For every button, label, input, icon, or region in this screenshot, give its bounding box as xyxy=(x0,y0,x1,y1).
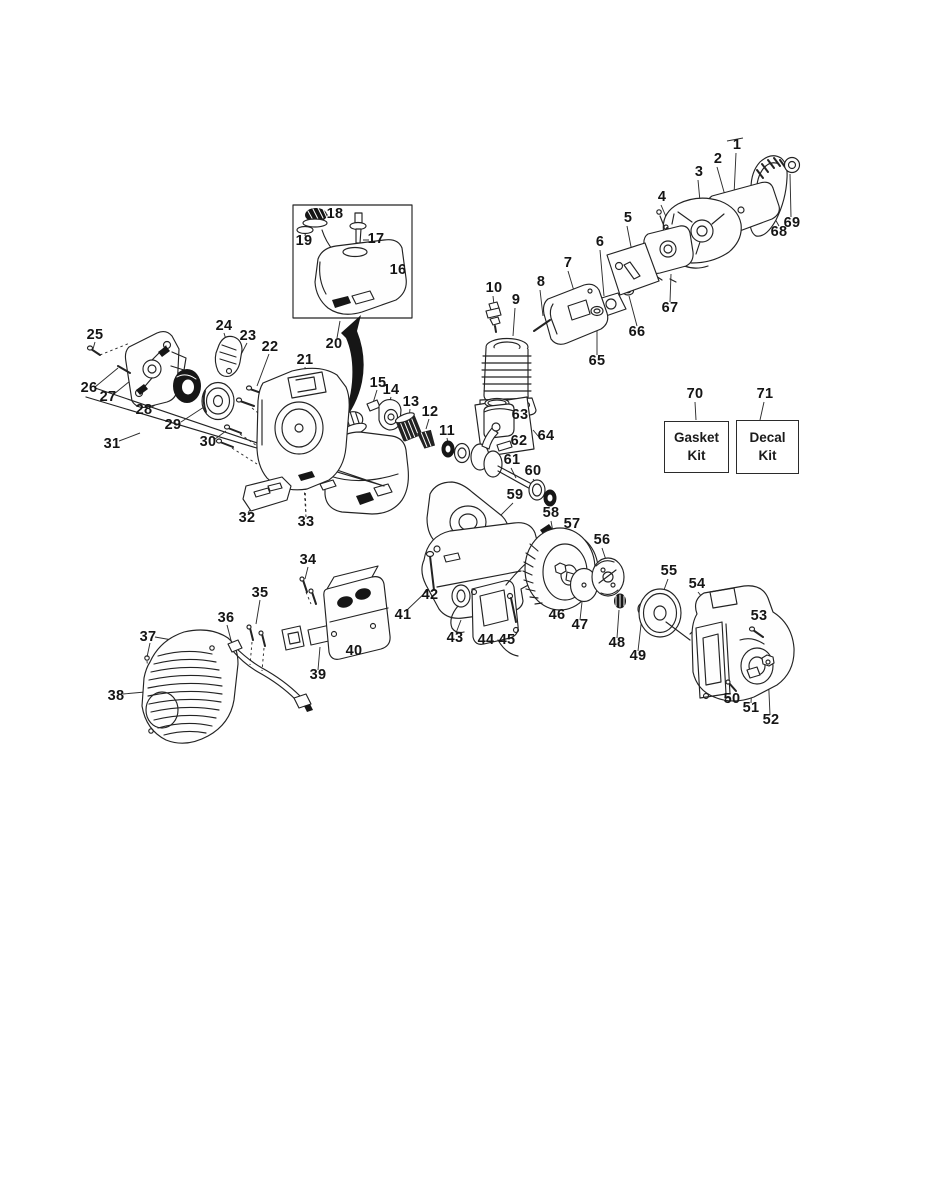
starter-screw xyxy=(91,349,100,355)
spark-plug xyxy=(486,302,501,332)
part-label-5: 5 xyxy=(624,210,632,226)
diagram-line-art xyxy=(0,0,932,1200)
part-label-16: 16 xyxy=(390,262,407,278)
part-label-6: 6 xyxy=(596,234,604,250)
flywheel-nut xyxy=(555,563,566,574)
part-label-3: 3 xyxy=(695,164,703,180)
part-label-8: 8 xyxy=(537,274,545,290)
part-label-13: 13 xyxy=(403,394,420,410)
part-label-41: 41 xyxy=(395,607,412,623)
part-label-48: 48 xyxy=(609,635,626,651)
part-label-15: 15 xyxy=(370,375,387,391)
part-label-7: 7 xyxy=(564,255,572,271)
gasket-kit-label-line1: Gasket xyxy=(674,429,719,447)
part-label-60: 60 xyxy=(525,463,542,479)
decal-kit-label-line2: Kit xyxy=(759,447,777,465)
part-label-47: 47 xyxy=(572,617,589,633)
part-label-63: 63 xyxy=(512,407,529,423)
part-label-50: 50 xyxy=(724,691,741,707)
part-label-61: 61 xyxy=(504,452,521,468)
part-label-20: 20 xyxy=(326,336,343,352)
crank-bearing-right xyxy=(529,480,545,500)
cover-knob xyxy=(785,158,800,173)
part-label-66: 66 xyxy=(629,324,646,340)
part-label-4: 4 xyxy=(658,189,666,205)
part-label-31: 31 xyxy=(104,436,121,452)
part-label-70: 70 xyxy=(687,386,704,402)
part-label-18: 18 xyxy=(327,206,344,222)
part-label-58: 58 xyxy=(543,505,560,521)
part-label-29: 29 xyxy=(165,417,182,433)
part-label-34: 34 xyxy=(300,552,317,568)
part-label-46: 46 xyxy=(549,607,566,623)
clutch-housing xyxy=(692,586,794,703)
part-label-44: 44 xyxy=(478,632,495,648)
part-label-39: 39 xyxy=(310,667,327,683)
cover-screw-b xyxy=(262,634,265,646)
clutch-assembly xyxy=(592,558,624,596)
part-label-64: 64 xyxy=(538,428,555,444)
part-label-35: 35 xyxy=(252,585,269,601)
part-label-67: 67 xyxy=(662,300,679,316)
part-label-33: 33 xyxy=(298,514,315,530)
parts-diagram-page: 1234567891011121314151617181920212223242… xyxy=(0,0,932,1200)
cover-bolt-a xyxy=(228,428,241,433)
crank-bearing-left xyxy=(455,444,470,463)
part-label-53: 53 xyxy=(751,608,768,624)
tank-bracket xyxy=(243,477,291,511)
part-label-32: 32 xyxy=(239,510,256,526)
part-label-24: 24 xyxy=(216,318,233,334)
muffler-ignition-drawing xyxy=(324,523,554,660)
part-label-19: 19 xyxy=(296,233,313,249)
part-label-22: 22 xyxy=(262,339,279,355)
part-label-51: 51 xyxy=(743,700,760,716)
part-label-12: 12 xyxy=(422,404,439,420)
part-label-57: 57 xyxy=(564,516,581,532)
decal-kit-box: Decal Kit xyxy=(736,420,799,474)
muffler-screw-a xyxy=(303,580,307,592)
engine-cover-drawing xyxy=(142,577,333,743)
gasket-kit-box: Gasket Kit xyxy=(664,421,729,473)
part-label-45: 45 xyxy=(499,632,516,648)
part-label-49: 49 xyxy=(630,648,647,664)
part-label-69: 69 xyxy=(784,215,801,231)
switch-plate xyxy=(282,626,304,650)
part-label-23: 23 xyxy=(240,328,257,344)
part-label-38: 38 xyxy=(108,688,125,704)
part-label-1: 1 xyxy=(733,137,741,153)
part-label-26: 26 xyxy=(81,380,98,396)
primer-spacer xyxy=(367,400,380,411)
muffler-screw-b xyxy=(312,592,316,604)
part-label-10: 10 xyxy=(486,280,503,296)
part-label-37: 37 xyxy=(140,629,157,645)
housing-bolt-b xyxy=(240,401,254,406)
cylinder-shield-plate xyxy=(544,284,608,344)
part-label-40: 40 xyxy=(346,643,363,659)
part-label-9: 9 xyxy=(512,292,520,308)
part-label-56: 56 xyxy=(594,532,611,548)
part-label-62: 62 xyxy=(511,433,528,449)
throttle-cable xyxy=(228,640,313,712)
part-label-17: 17 xyxy=(368,231,385,247)
decal-kit-label-line1: Decal xyxy=(749,429,785,447)
part-label-54: 54 xyxy=(689,576,706,592)
part-label-11: 11 xyxy=(439,423,455,439)
part-label-65: 65 xyxy=(589,353,606,369)
part-label-55: 55 xyxy=(661,563,678,579)
part-label-25: 25 xyxy=(87,327,104,343)
rope-pulley xyxy=(202,383,234,420)
cover-screw-a xyxy=(250,628,253,640)
starter-grip xyxy=(215,336,242,376)
part-label-36: 36 xyxy=(218,610,235,626)
cover-bolt-b xyxy=(220,442,233,447)
part-label-59: 59 xyxy=(507,487,524,503)
part-label-52: 52 xyxy=(763,712,780,728)
part-label-2: 2 xyxy=(714,151,722,167)
part-label-42: 42 xyxy=(422,587,439,603)
gasket-kit-label-line2: Kit xyxy=(688,447,706,465)
part-label-27: 27 xyxy=(100,389,117,405)
part-label-43: 43 xyxy=(447,630,464,646)
part-label-21: 21 xyxy=(297,352,314,368)
part-label-30: 30 xyxy=(200,434,217,450)
part-label-28: 28 xyxy=(136,402,153,418)
starter-housing xyxy=(257,368,349,490)
part-label-71: 71 xyxy=(757,386,774,402)
